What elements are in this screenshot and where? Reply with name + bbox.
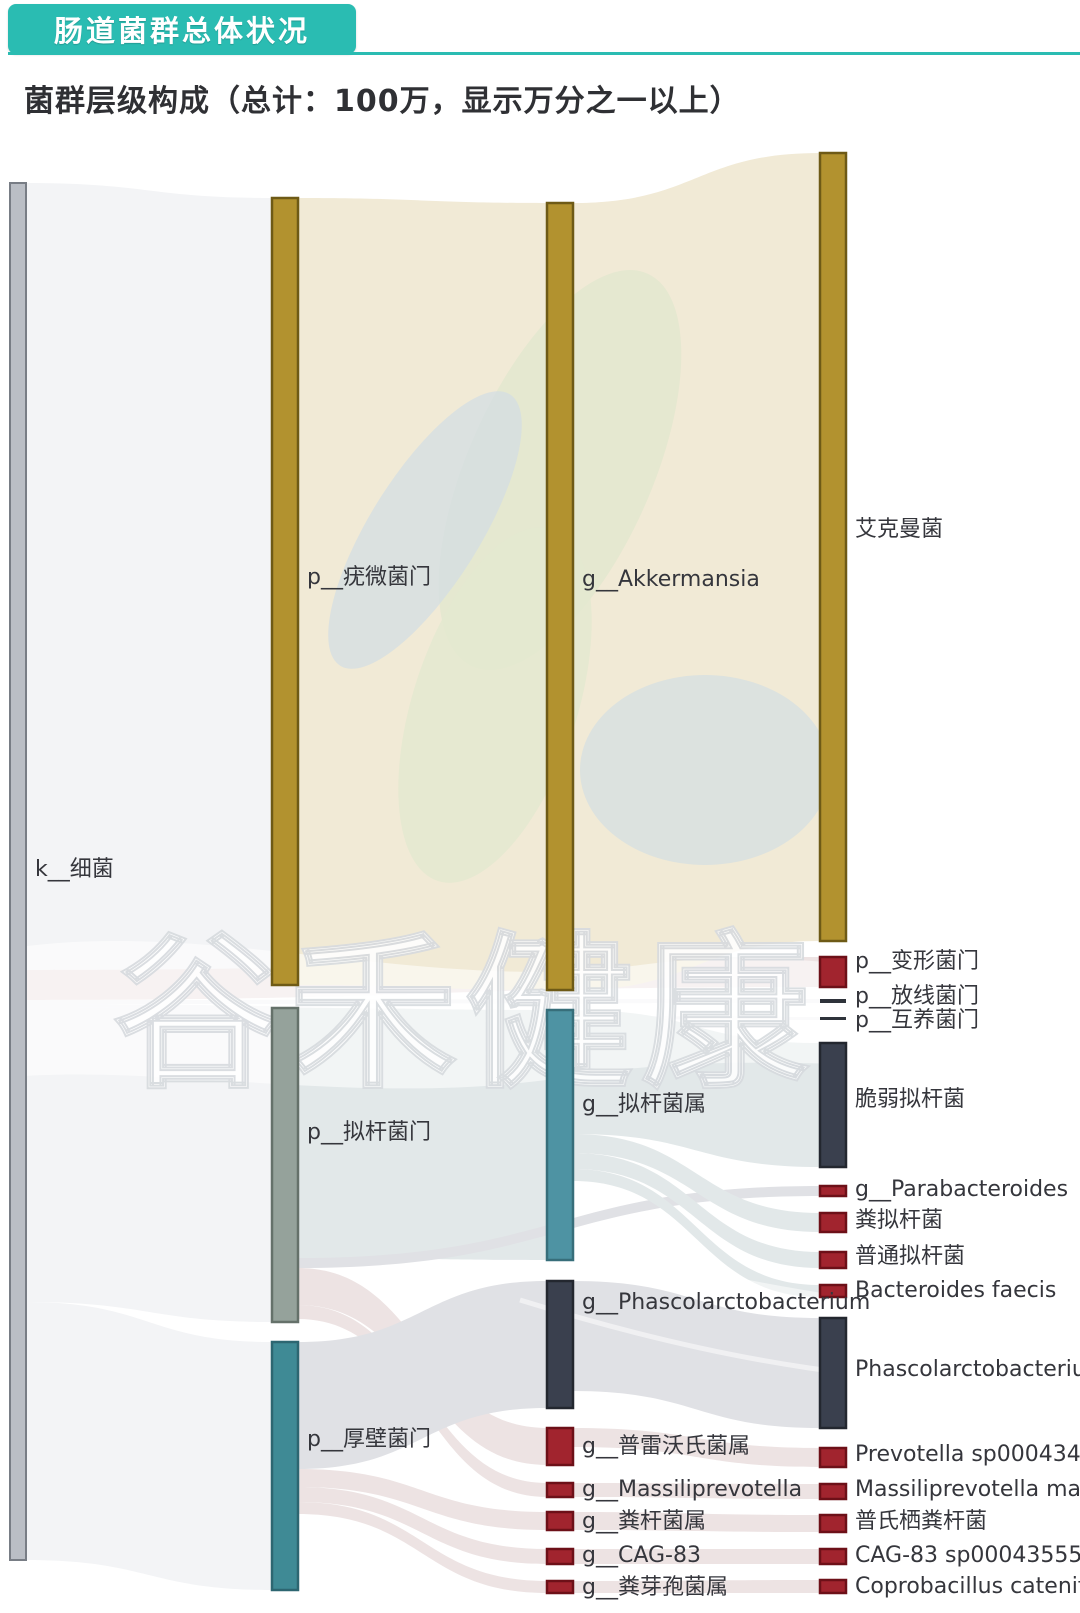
node-bar-g_akkermansia: [547, 203, 573, 990]
flow-g_prevotella-to-s_prevotella_sp: [573, 1428, 820, 1467]
node-bar-p_actinobacteria: [820, 999, 846, 1003]
node-bar-p_proteobacteria: [820, 957, 846, 987]
node-bar-s_cag83_sp: [820, 1549, 846, 1564]
flow-k_bacteria-to-p_firmicutes: [26, 1302, 272, 1590]
node-bar-g_parabacteroides: [820, 1186, 846, 1196]
watermark-swirl-icon: [580, 675, 830, 865]
node-bar-s_massiliprevotella: [820, 1484, 846, 1499]
node-bar-s_coprobacillus: [820, 1580, 846, 1593]
node-bar-g_phascolarcto: [547, 1281, 573, 1408]
node-bar-g_coprobacillus: [547, 1581, 573, 1593]
node-bar-s_prausnitzii: [820, 1515, 846, 1532]
flow-layer: [26, 153, 820, 1593]
node-bar-s_phascolarcto: [820, 1318, 846, 1428]
node-bar-p_bacteroidetes: [272, 1008, 298, 1322]
flow-g_faecalibacterium-to-s_prausnitzii: [573, 1512, 820, 1532]
node-bar-p_verruco: [272, 198, 298, 985]
node-bar-g_faecalibacterium: [547, 1512, 573, 1530]
node-bar-g_prevotella: [547, 1428, 573, 1465]
node-bar-g_bacteroides: [547, 1010, 573, 1260]
node-bar-s_vulgatus: [820, 1252, 846, 1268]
sankey-diagram: 谷禾健康: [0, 0, 1080, 1613]
flow-g_massiliprevotella-to-s_massiliprevotella: [573, 1483, 820, 1499]
node-bar-s_fragilis: [820, 1043, 846, 1167]
node-bar-s_caccae: [820, 1213, 846, 1232]
node-bar-s_akkermansia: [820, 153, 846, 941]
node-bar-s_prevotella_sp: [820, 1448, 846, 1467]
flow-g_coprobacillus-to-s_coprobacillus: [573, 1580, 820, 1593]
node-bar-g_cag83: [547, 1549, 573, 1564]
flow-g_phascolarcto-to-s_phascolarcto: [573, 1281, 820, 1428]
node-bar-g_massiliprevotella: [547, 1483, 573, 1497]
flow-g_cag83-to-s_cag83_sp: [573, 1549, 820, 1564]
node-bar-p_firmicutes: [272, 1342, 298, 1590]
node-bar-s_faecis: [820, 1285, 846, 1297]
node-bar-p_synergistetes: [820, 1017, 846, 1020]
flow-k_bacteria-to-p_verruco: [26, 183, 272, 985]
node-bar-k_bacteria: [10, 183, 26, 1560]
watermark-text: 谷禾健康: [113, 916, 817, 1112]
report-page: 肠道菌群总体状况 菌群层级构成（总计：100万，显示万分之一以上） 谷禾健康 k…: [0, 0, 1080, 1613]
